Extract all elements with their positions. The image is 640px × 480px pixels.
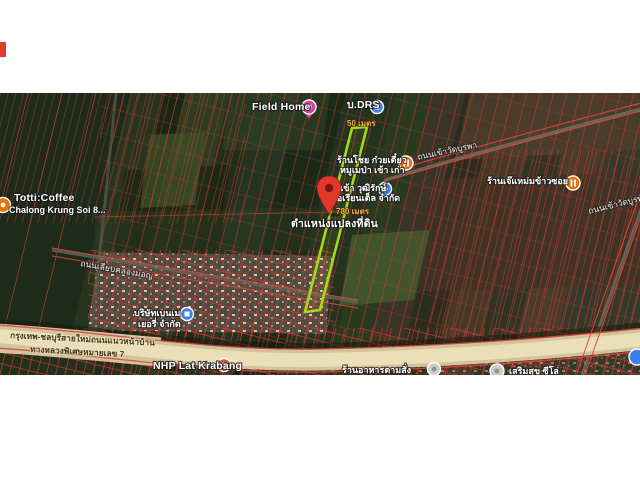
satellite-map[interactable]: 50 เมตร 780 เมตร ถนนเข้าวัดบูรพา ถนนเข้า… <box>0 93 640 375</box>
poi-food-shop-icon[interactable] <box>428 363 441 376</box>
label-totti-1: Totti:Coffee <box>14 192 75 204</box>
label-food-shop: ร้านอาหารตามสั่ง <box>342 363 411 375</box>
label-company-2: เยอรี่ จำกัด <box>138 317 181 329</box>
screenshot-page: 50 เมตร 780 เมตร ถนนเข้าวัดบูรพา ถนนเข้า… <box>0 0 640 480</box>
parcel-side-measure: 780 เมตร <box>336 207 370 216</box>
parcel-top-measure: 50 เมตร <box>347 119 376 128</box>
urban-buildings <box>88 252 332 334</box>
poi-jae-mam-restaurant-icon[interactable] <box>566 176 580 190</box>
label-company-1: บริษัทเบนเม <box>134 308 180 318</box>
label-noodle-2: หมูเมป่า เข้า เก่า <box>340 165 405 176</box>
poi-partial-blue-icon[interactable] <box>629 349 640 365</box>
label-jae-mam: ร้านเจ๊แหม่มข้าวซอย <box>487 176 568 186</box>
label-parcel-position: ตำแหน่งแปลงที่ดิน <box>291 215 379 230</box>
label-totti-2: Chalong Krung Soi 8... <box>9 205 106 215</box>
label-field-home: Field Home <box>252 101 311 113</box>
label-nhp: NHP Lat Krabang <box>153 360 242 372</box>
poi-company-icon[interactable] <box>181 308 194 321</box>
map-viewport[interactable]: 50 เมตร 780 เมตร ถนนเข้าวัดบูรพา ถนนเข้า… <box>0 93 640 375</box>
label-noodle-1: ร้านโชย ก๋วยเตี๋ยว <box>337 153 407 165</box>
poi-sermsuk-icon[interactable] <box>490 364 504 375</box>
label-water-2: โอเรียนเต็ล จำกัด <box>331 191 400 203</box>
label-sermsuk: เสริมสุข ซีโล่ <box>509 365 559 375</box>
red-edge-artifact <box>0 42 6 57</box>
label-drs: บ.DRS <box>347 99 380 111</box>
